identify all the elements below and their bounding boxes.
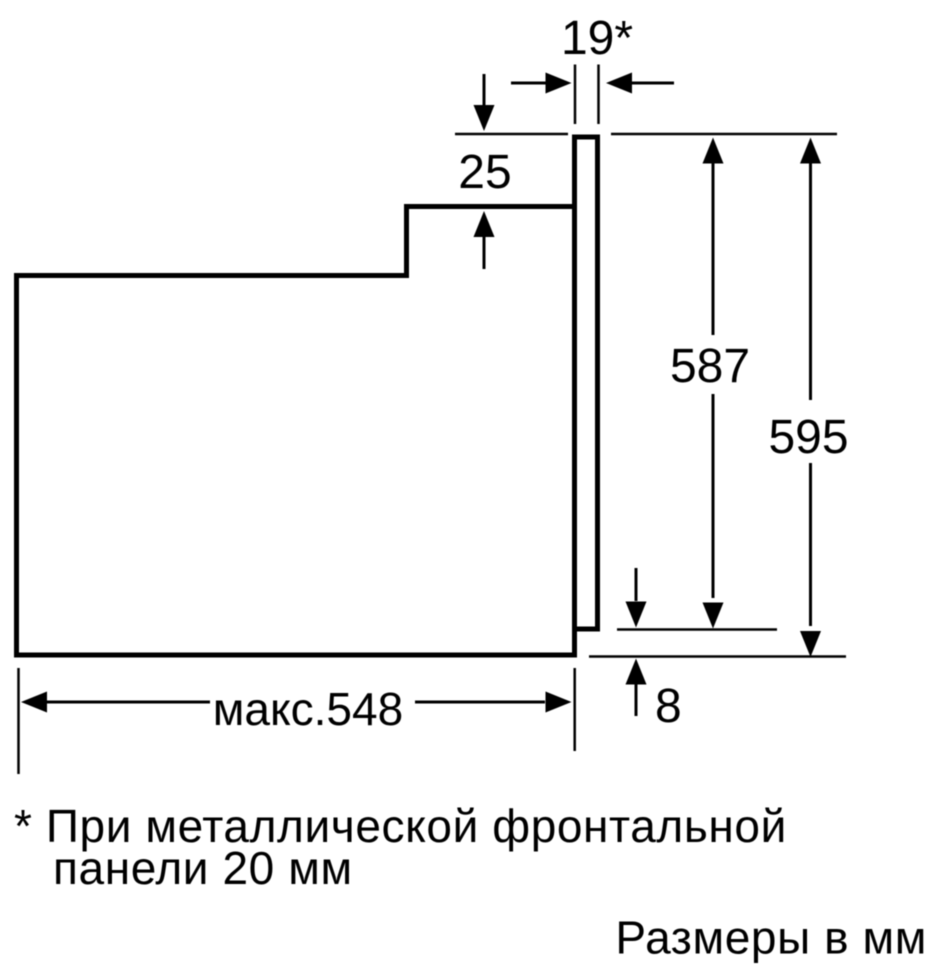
svg-text:25: 25 — [458, 146, 511, 199]
svg-text:595: 595 — [768, 411, 848, 464]
svg-text:587: 587 — [670, 340, 750, 393]
svg-text:8: 8 — [655, 680, 682, 733]
svg-text:Размеры в мм: Размеры в мм — [615, 912, 927, 964]
svg-text:макс.548: макс.548 — [213, 683, 403, 735]
svg-text:панели 20 мм: панели 20 мм — [53, 842, 353, 894]
svg-text:19*: 19* — [561, 12, 633, 65]
